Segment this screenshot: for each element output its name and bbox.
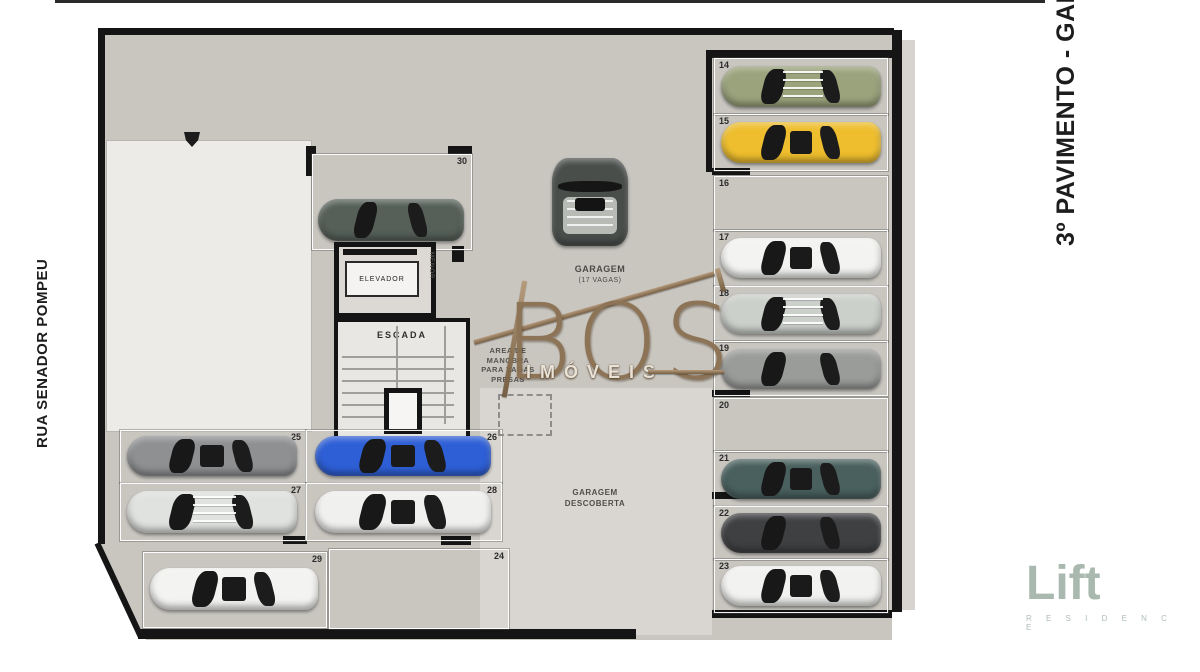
car-top-view bbox=[721, 349, 881, 389]
wall-left bbox=[98, 28, 105, 544]
spot-number: 19 bbox=[719, 343, 729, 353]
car-windshield bbox=[351, 202, 379, 238]
parking-spot-20: 20 bbox=[714, 398, 888, 452]
car-top-view bbox=[721, 238, 881, 278]
parking-spot-29: 29 bbox=[143, 552, 327, 628]
car-windshield bbox=[758, 462, 787, 496]
car-rear-glass bbox=[818, 242, 842, 274]
lift-logo-subtitle: R E S I D E N C E bbox=[1026, 614, 1176, 632]
car-windshield bbox=[356, 439, 387, 473]
car-top-view bbox=[150, 568, 318, 610]
street-name-label: RUA SENADOR POMPEU bbox=[34, 272, 51, 448]
car-rear-glass bbox=[818, 463, 842, 495]
car-sunroof bbox=[790, 575, 812, 597]
car-top-view bbox=[318, 199, 464, 241]
wall-tab-7 bbox=[448, 146, 472, 154]
parking-spot-26: 26 bbox=[306, 430, 502, 483]
car-top-view bbox=[721, 122, 881, 163]
parking-spot-27: 27 bbox=[120, 483, 306, 541]
car-windshield bbox=[758, 241, 787, 275]
car-windshield bbox=[758, 125, 788, 160]
car-top-view bbox=[721, 294, 881, 334]
car-sunroof bbox=[222, 577, 246, 601]
car-rear-glass bbox=[818, 517, 842, 549]
spot-number: 14 bbox=[719, 60, 729, 70]
maneuver-line: MANOBRA bbox=[487, 356, 530, 365]
car-windshield bbox=[758, 569, 787, 603]
wall-right-column-left bbox=[706, 50, 712, 172]
car-rear-glass bbox=[818, 570, 842, 602]
lift-logo-word: Lift bbox=[1026, 560, 1176, 608]
uncovered-line: GARAGEM bbox=[572, 488, 617, 497]
building-core-area bbox=[106, 140, 312, 432]
parking-spot-22: 22 bbox=[714, 506, 888, 560]
car-windshield bbox=[167, 439, 198, 473]
parking-spot-21: 21 bbox=[714, 451, 888, 506]
car-windshield bbox=[558, 181, 622, 192]
car-sunroof bbox=[200, 445, 224, 467]
spot-number: 16 bbox=[719, 178, 729, 188]
stairwell: ESCADA bbox=[334, 318, 470, 440]
right-margin-strip bbox=[902, 40, 915, 610]
floor-title-label: 3º PAVIMENTO - GARAGEM bbox=[1052, 34, 1081, 246]
car-sunroof bbox=[575, 198, 605, 210]
car-top-view bbox=[127, 436, 297, 476]
garage-title-label: GARAGEM (17 VAGAS) bbox=[548, 264, 652, 284]
car-windshield bbox=[189, 571, 220, 607]
car-top-view bbox=[721, 66, 881, 107]
wall-bottom bbox=[138, 629, 636, 639]
wall-top bbox=[98, 28, 894, 35]
spot-number: 29 bbox=[312, 554, 322, 564]
elevator-door-gap bbox=[421, 284, 428, 297]
car-top-view bbox=[721, 566, 881, 606]
car-rear-glass bbox=[818, 126, 842, 159]
wall-right bbox=[892, 30, 902, 612]
spot-number: 24 bbox=[494, 551, 504, 561]
car-rear-glass bbox=[422, 495, 448, 529]
reserved-area-dashed bbox=[498, 394, 552, 436]
car-rear-glass bbox=[252, 572, 277, 606]
car-rear-glass bbox=[230, 440, 255, 472]
maneuver-area-label: AREA DE MANOBRA PARA VAGAS PRESAS bbox=[478, 346, 538, 384]
maneuver-line: AREA DE bbox=[490, 346, 527, 355]
elevator-label-box: ELEVADOR bbox=[345, 261, 419, 297]
car-windshield bbox=[758, 516, 787, 550]
car-rear-glass bbox=[406, 203, 429, 237]
elevator-top-bar bbox=[343, 249, 417, 255]
maneuver-line: PRESAS bbox=[491, 375, 525, 384]
car-sunroof bbox=[391, 500, 416, 524]
car-top-view-vertical bbox=[552, 158, 628, 246]
car-sunroof bbox=[391, 445, 416, 467]
stair-divider bbox=[444, 326, 446, 424]
elevator-shaft-label: MENOR bbox=[428, 252, 434, 279]
parking-spot-17: 17 bbox=[714, 230, 888, 286]
spot-number: 21 bbox=[719, 453, 729, 463]
parking-spot-19: 19 bbox=[714, 341, 888, 396]
car-top-view bbox=[315, 436, 491, 476]
parking-spot-30: 30 bbox=[312, 154, 472, 250]
parking-spot-14: 14 bbox=[714, 58, 888, 115]
parking-spot-18: 18 bbox=[714, 286, 888, 342]
elevator-door-gap bbox=[421, 254, 428, 267]
car-rear-glass bbox=[422, 440, 448, 472]
spot-number: 17 bbox=[719, 232, 729, 242]
parking-spot-23: 23 bbox=[714, 559, 888, 613]
maneuver-line: PARA VAGAS bbox=[481, 365, 535, 374]
car-roof-rack bbox=[783, 71, 823, 103]
spot-number: 18 bbox=[719, 288, 729, 298]
parking-spot-24: 24 bbox=[329, 549, 509, 629]
stairs-label: ESCADA bbox=[338, 330, 466, 340]
uncovered-line: DESCOBERTA bbox=[565, 499, 625, 508]
garage-capacity: (17 VAGAS) bbox=[579, 277, 622, 284]
car-sunroof bbox=[790, 468, 812, 490]
parking-spot-25: 25 bbox=[120, 430, 306, 483]
spot-number: 20 bbox=[719, 400, 729, 410]
car-roof-rack bbox=[193, 496, 236, 529]
garage-floorplan: 14 15 16 17 18 19 bbox=[0, 0, 1200, 672]
car-windshield bbox=[758, 352, 787, 386]
car-top-view bbox=[127, 491, 297, 533]
parking-spot-15: 15 bbox=[714, 114, 888, 171]
stair-door bbox=[384, 388, 422, 434]
car-rear-glass bbox=[818, 353, 842, 385]
car-top-view bbox=[721, 513, 881, 553]
lift-residence-logo: Lift R E S I D E N C E bbox=[1026, 560, 1176, 632]
spot-number: 15 bbox=[719, 116, 729, 126]
uncovered-garage-label: GARAGEM DESCOBERTA bbox=[540, 487, 650, 509]
garage-word: GARAGEM bbox=[575, 264, 626, 274]
wall-right-column-top bbox=[712, 50, 892, 58]
parking-spot-28: 28 bbox=[306, 483, 502, 541]
car-top-view bbox=[721, 459, 881, 499]
spot-number: 30 bbox=[457, 156, 467, 166]
car-windshield bbox=[356, 494, 388, 530]
spot-number: 28 bbox=[487, 485, 497, 495]
elevator-label: ELEVADOR bbox=[359, 276, 405, 283]
car-sunroof bbox=[790, 131, 812, 154]
car-roof-rack bbox=[783, 298, 823, 329]
car-top-view bbox=[315, 491, 491, 533]
car-sunroof bbox=[790, 247, 812, 269]
spot-number: 26 bbox=[487, 432, 497, 442]
parking-spot-16: 16 bbox=[714, 176, 888, 231]
